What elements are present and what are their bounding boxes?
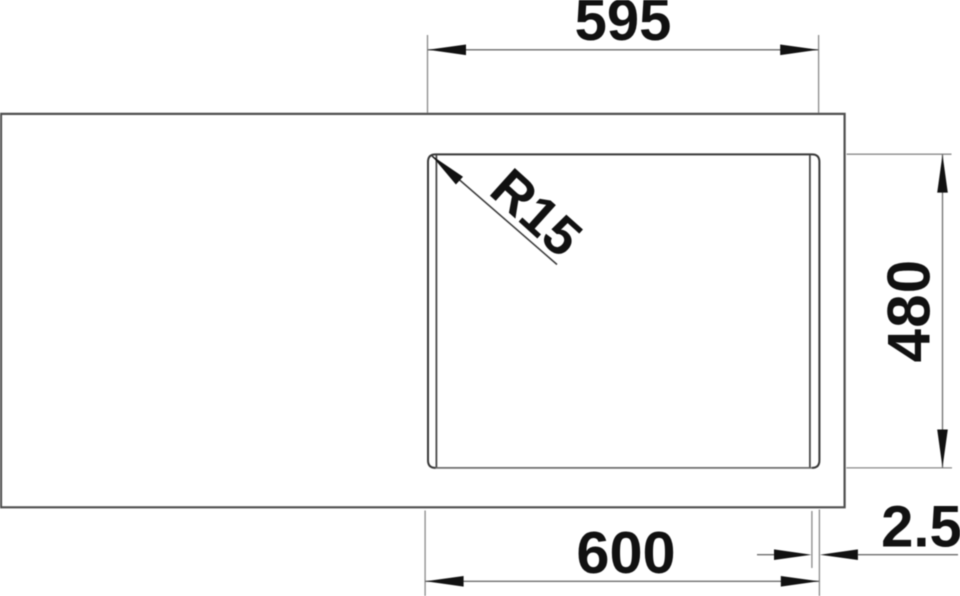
svg-text:2.5: 2.5 bbox=[881, 495, 960, 560]
svg-text:595: 595 bbox=[575, 0, 672, 53]
svg-text:480: 480 bbox=[876, 259, 943, 363]
svg-text:600: 600 bbox=[576, 519, 675, 586]
